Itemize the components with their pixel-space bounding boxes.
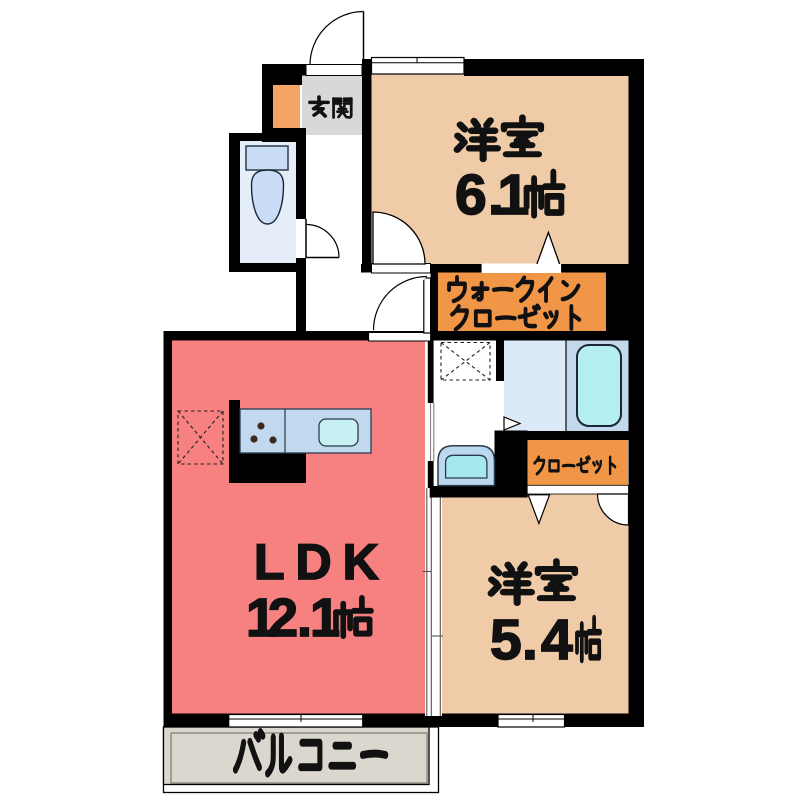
svg-text:LDK: LDK	[254, 534, 390, 590]
svg-text:2: 2	[268, 588, 298, 648]
svg-text:4: 4	[541, 608, 573, 672]
svg-text:5: 5	[490, 608, 522, 672]
svg-text:6: 6	[455, 163, 487, 227]
svg-text:.: .	[522, 608, 538, 672]
